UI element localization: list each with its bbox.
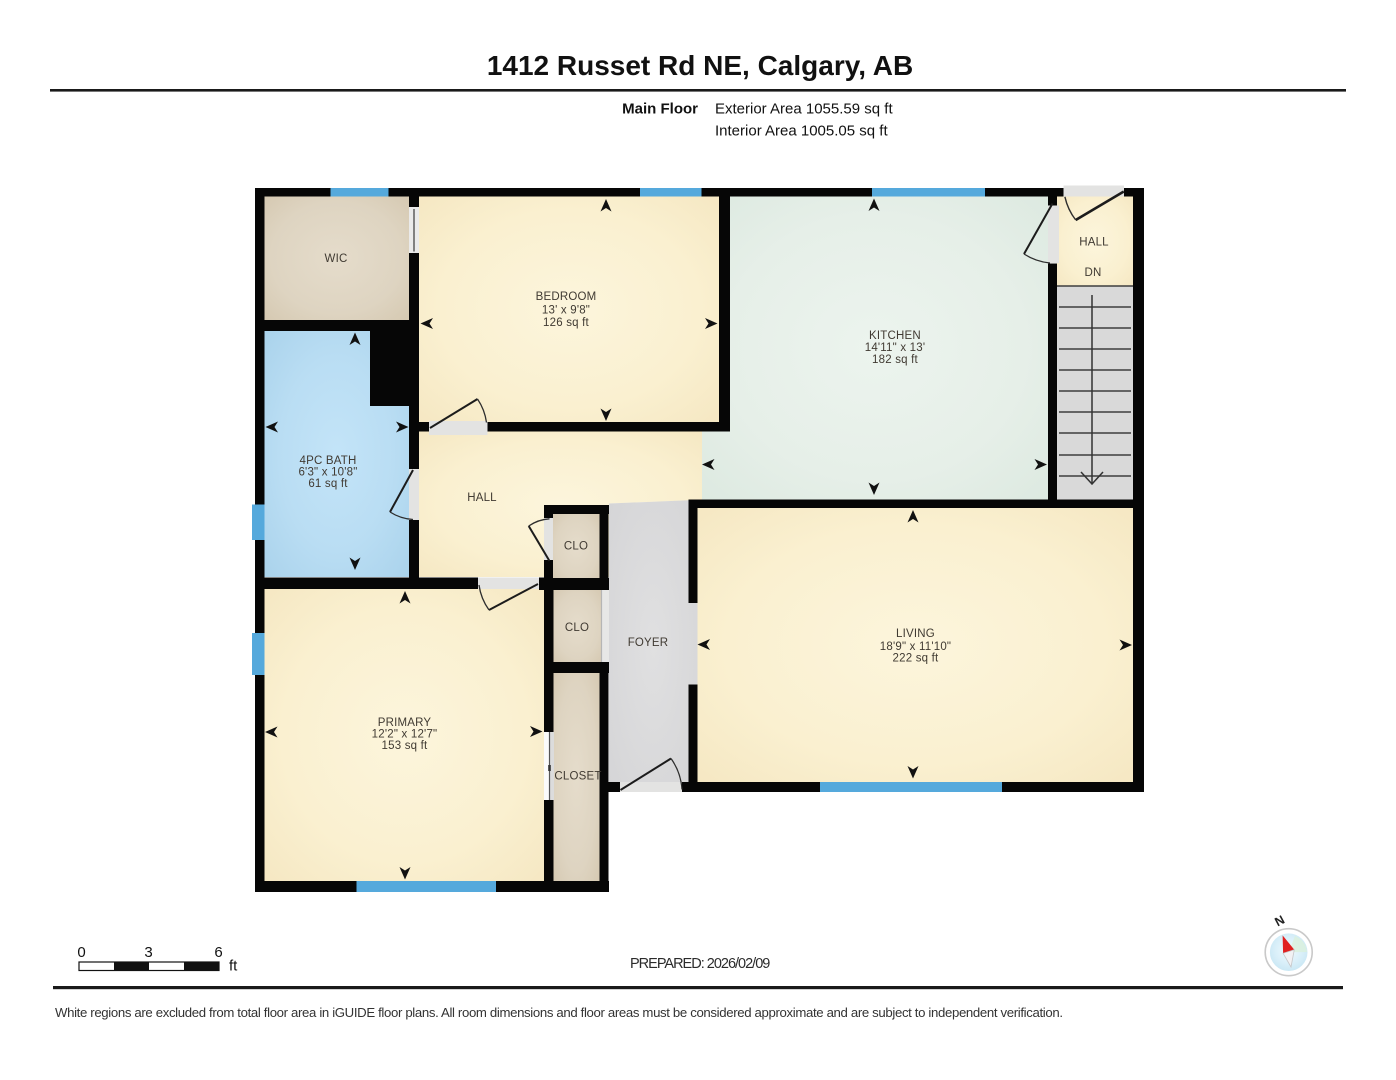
svg-text:White regions are excluded fro: White regions are excluded from total fl… bbox=[55, 1005, 1063, 1020]
svg-text:0: 0 bbox=[77, 944, 85, 961]
svg-text:Exterior Area 1055.59 sq ft: Exterior Area 1055.59 sq ft bbox=[715, 101, 893, 118]
svg-text:18'9" x 11'10": 18'9" x 11'10" bbox=[880, 641, 951, 653]
svg-text:153 sq ft: 153 sq ft bbox=[382, 740, 429, 752]
svg-text:126 sq ft: 126 sq ft bbox=[543, 317, 590, 329]
svg-text:Interior Area 1005.05 sq ft: Interior Area 1005.05 sq ft bbox=[715, 123, 888, 140]
svg-text:222 sq ft: 222 sq ft bbox=[893, 653, 940, 665]
svg-text:WIC: WIC bbox=[325, 253, 348, 265]
svg-text:Main Floor: Main Floor bbox=[622, 101, 698, 118]
svg-text:61 sq ft: 61 sq ft bbox=[308, 478, 348, 490]
svg-text:PRIMARY: PRIMARY bbox=[378, 717, 432, 729]
svg-text:1412 Russet Rd NE, Calgary, AB: 1412 Russet Rd NE, Calgary, AB bbox=[487, 50, 913, 81]
svg-text:4PC BATH: 4PC BATH bbox=[300, 455, 357, 467]
svg-text:CLO: CLO bbox=[564, 541, 588, 553]
svg-text:PREPARED: 2026/02/09: PREPARED: 2026/02/09 bbox=[630, 956, 770, 972]
svg-text:N: N bbox=[1272, 913, 1287, 930]
svg-text:14'11" x 13': 14'11" x 13' bbox=[865, 342, 926, 354]
svg-text:12'2" x 12'7": 12'2" x 12'7" bbox=[372, 729, 438, 741]
svg-text:13' x 9'8": 13' x 9'8" bbox=[542, 305, 590, 317]
svg-text:HALL: HALL bbox=[467, 492, 497, 504]
svg-text:KITCHEN: KITCHEN bbox=[869, 330, 921, 342]
svg-text:FOYER: FOYER bbox=[628, 637, 669, 649]
svg-text:HALL: HALL bbox=[1079, 237, 1109, 249]
svg-text:3: 3 bbox=[144, 944, 152, 961]
svg-text:LIVING: LIVING bbox=[896, 628, 935, 640]
svg-text:CLOSET: CLOSET bbox=[554, 771, 601, 783]
svg-text:6: 6 bbox=[214, 944, 222, 961]
svg-text:182 sq ft: 182 sq ft bbox=[872, 354, 919, 366]
svg-text:BEDROOM: BEDROOM bbox=[536, 291, 597, 303]
svg-text:6'3" x 10'8": 6'3" x 10'8" bbox=[298, 467, 357, 479]
svg-text:CLO: CLO bbox=[565, 622, 589, 634]
svg-text:DN: DN bbox=[1084, 267, 1101, 279]
svg-text:ft: ft bbox=[229, 958, 238, 975]
